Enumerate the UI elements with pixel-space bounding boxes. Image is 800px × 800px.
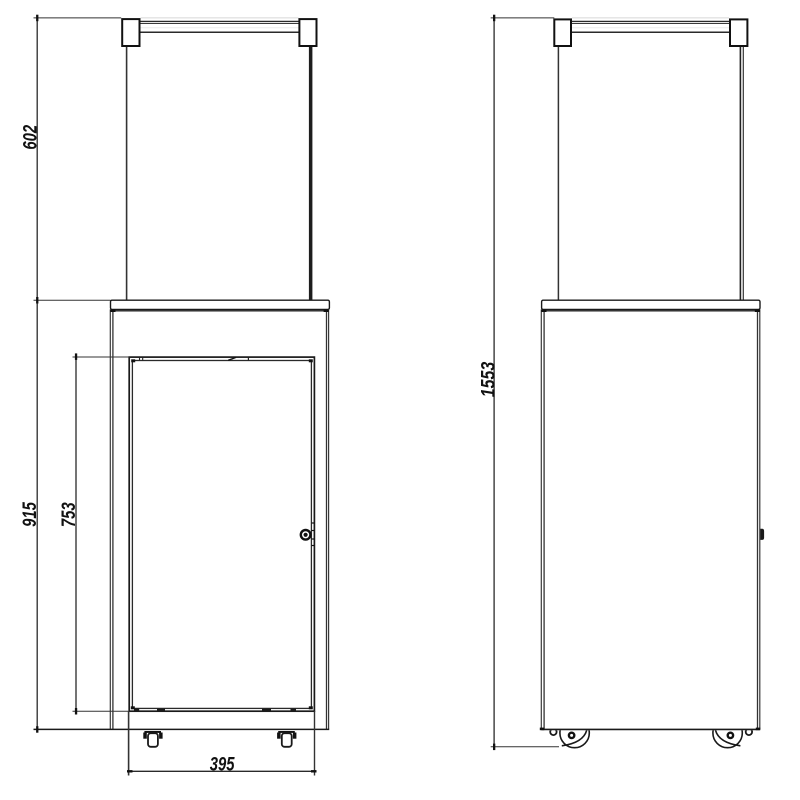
- svg-text:602: 602: [20, 124, 41, 149]
- svg-text:395: 395: [210, 754, 235, 775]
- svg-text:1553: 1553: [477, 362, 499, 398]
- svg-text:753: 753: [58, 502, 79, 527]
- svg-text:915: 915: [19, 502, 40, 527]
